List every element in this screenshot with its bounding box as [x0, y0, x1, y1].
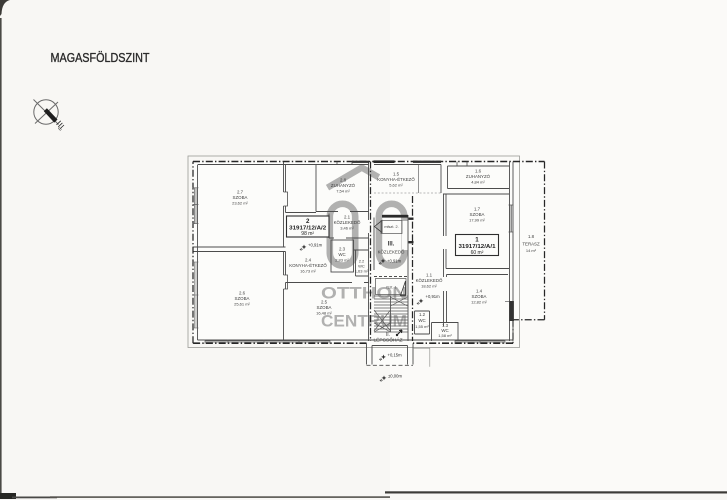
svg-text:SZOBA: SZOBA	[233, 195, 248, 200]
svg-text:TERASZ: TERASZ	[522, 242, 540, 247]
svg-text:25,61 m²: 25,61 m²	[234, 302, 250, 307]
svg-text:CENTRUM: CENTRUM	[321, 313, 407, 331]
svg-text:98 m²: 98 m²	[301, 231, 314, 237]
svg-text:mfszt. 2.: mfszt. 2.	[384, 225, 398, 229]
svg-text:LÉPCSŐHÁZ: LÉPCSŐHÁZ	[373, 337, 402, 344]
svg-text:WC: WC	[418, 318, 425, 323]
svg-text:+0,91m: +0,91m	[426, 294, 441, 299]
svg-text:2.3: 2.3	[339, 247, 346, 252]
svg-text:4,84 m²: 4,84 m²	[471, 180, 485, 185]
svg-text:2.7: 2.7	[237, 190, 244, 195]
svg-text:2.5: 2.5	[321, 300, 328, 305]
svg-text:SZOBA: SZOBA	[317, 305, 332, 310]
svg-text:KÖZLEKEDŐ: KÖZLEKEDŐ	[378, 250, 405, 255]
svg-text:23,62 m²: 23,62 m²	[232, 201, 248, 206]
svg-text:III.: III.	[388, 242, 395, 248]
svg-text:MAGASFÖLDSZINT: MAGASFÖLDSZINT	[51, 50, 150, 65]
svg-text:2.4: 2.4	[305, 258, 312, 263]
svg-text:3,46 m²: 3,46 m²	[340, 226, 354, 231]
svg-text:SZOBA: SZOBA	[235, 296, 250, 301]
svg-text:WC: WC	[338, 252, 345, 257]
svg-text:2.6: 2.6	[239, 291, 246, 296]
svg-text:1.5: 1.5	[393, 172, 400, 177]
svg-text:60 m²: 60 m²	[471, 250, 484, 256]
svg-text:1.8: 1.8	[528, 234, 535, 239]
svg-text:ZUHANYZÓ: ZUHANYZÓ	[466, 174, 491, 179]
svg-text:fszt. 1: fszt. 1	[386, 286, 396, 290]
svg-text:KÖZLEKEDŐ: KÖZLEKEDŐ	[416, 278, 443, 283]
svg-text:2: 2	[306, 218, 310, 225]
svg-text:1.2: 1.2	[419, 312, 426, 317]
svg-text:1,58 m²: 1,58 m²	[438, 333, 452, 338]
svg-text:+0,91m: +0,91m	[387, 259, 402, 264]
svg-text:II.: II.	[386, 332, 390, 338]
svg-text:2.1: 2.1	[344, 215, 351, 220]
svg-text:7,54 m²: 7,54 m²	[336, 189, 350, 194]
svg-text:±0,00m: ±0,00m	[388, 374, 402, 379]
svg-text:1: 1	[475, 237, 479, 244]
svg-text:KÖZLEKEDŐ: KÖZLEKEDŐ	[334, 220, 361, 225]
svg-text:KONYHA-ÉTKEZŐ: KONYHA-ÉTKEZŐ	[289, 263, 327, 268]
svg-text:18,62 m²: 18,62 m²	[421, 284, 437, 289]
svg-text:5,62 m²: 5,62 m²	[389, 183, 403, 188]
svg-text:KONYHA-ÉTKEZŐ: KONYHA-ÉTKEZŐ	[377, 177, 415, 182]
svg-text:2.8: 2.8	[340, 178, 347, 183]
svg-text:1,63 m²: 1,63 m²	[355, 269, 369, 274]
svg-text:SZOBA: SZOBA	[472, 294, 487, 299]
svg-text:ZUHANYZÓ: ZUHANYZÓ	[331, 183, 356, 188]
svg-text:1.6: 1.6	[475, 169, 482, 174]
svg-text:1.4: 1.4	[476, 289, 483, 294]
svg-text:+0,15m: +0,15m	[388, 353, 403, 358]
svg-text:+0,91m: +0,91m	[308, 243, 323, 248]
svg-text:1.7: 1.7	[474, 207, 481, 212]
svg-text:2,83 m²: 2,83 m²	[335, 258, 349, 263]
svg-text:SZOBA: SZOBA	[470, 212, 485, 217]
svg-text:16,73 m²: 16,73 m²	[300, 269, 316, 274]
svg-text:12,82 m²: 12,82 m²	[471, 300, 487, 305]
svg-text:17,99 m²: 17,99 m²	[469, 218, 485, 223]
svg-text:1.1: 1.1	[426, 273, 433, 278]
svg-text:1,55 m²: 1,55 m²	[415, 324, 429, 329]
svg-text:14 m²: 14 m²	[526, 248, 537, 253]
svg-text:16,48 m²: 16,48 m²	[316, 311, 332, 316]
